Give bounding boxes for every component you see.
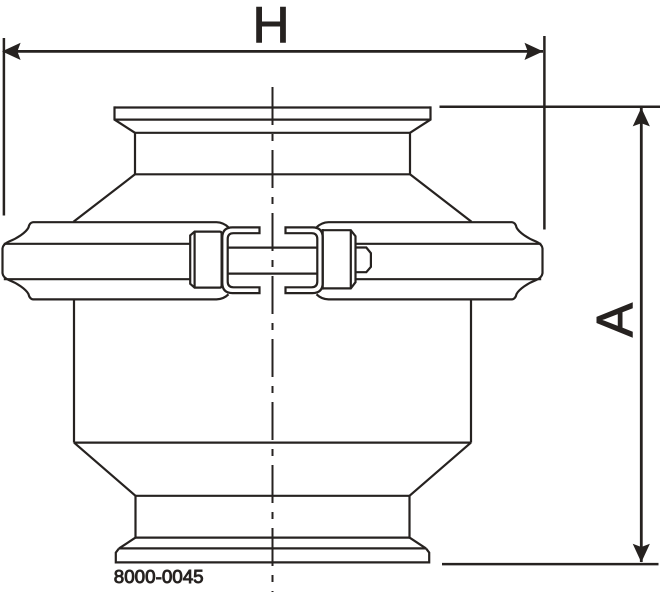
- svg-text:H: H: [252, 0, 289, 54]
- svg-text:A: A: [587, 302, 644, 337]
- svg-text:8000-0045: 8000-0045: [114, 566, 204, 587]
